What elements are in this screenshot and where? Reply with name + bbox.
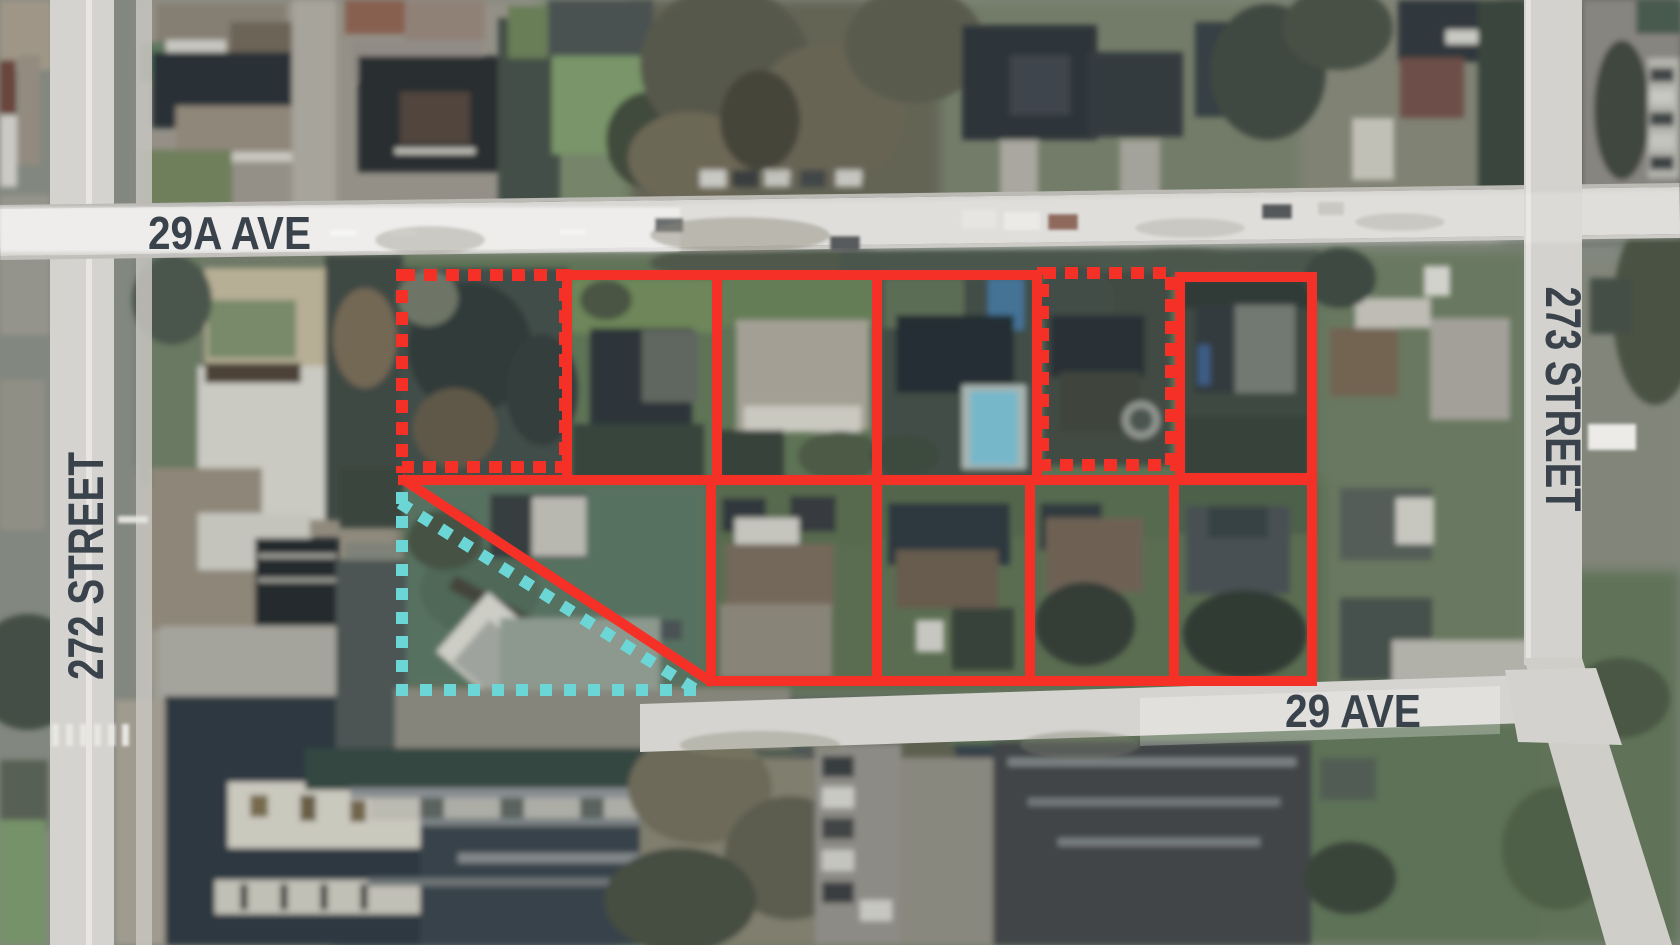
svg-text:29 AVE: 29 AVE: [1285, 685, 1421, 737]
svg-text:273 STREET: 273 STREET: [1535, 287, 1591, 512]
svg-text:29A AVE: 29A AVE: [148, 207, 311, 259]
svg-text:272 STREET: 272 STREET: [58, 452, 114, 680]
